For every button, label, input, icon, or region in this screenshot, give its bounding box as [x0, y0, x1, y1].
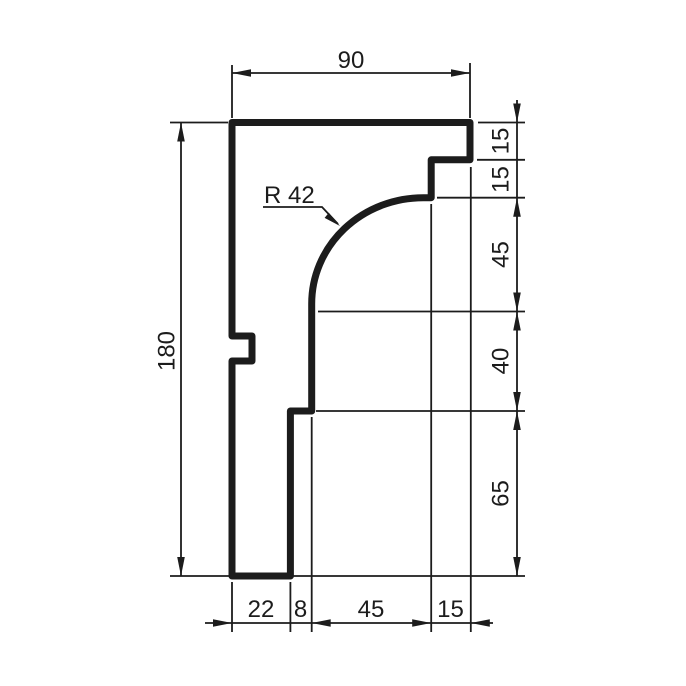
dim-bottom-15-label: 15	[437, 596, 464, 623]
dim-radius-label: R 42	[264, 182, 315, 209]
dim-top-width-label: 90	[338, 47, 365, 74]
dim-right-45-label: 45	[488, 241, 515, 268]
dim-right-15b-label: 15	[488, 166, 515, 193]
dim-right-40-label: 40	[488, 348, 515, 375]
drawing-background	[0, 0, 686, 686]
dim-bottom-8-label: 8	[294, 596, 307, 623]
drawing-canvas: 90 180 15 15 45 40 65 22 8 45 15 R 42	[0, 0, 686, 686]
dim-left-height-label: 180	[154, 331, 181, 371]
dim-bottom-22-label: 22	[248, 596, 275, 623]
dim-bottom-45-label: 45	[358, 596, 385, 623]
dim-right-65-label: 65	[488, 480, 515, 507]
profile-drawing: 90 180 15 15 45 40 65 22 8 45 15 R 42	[0, 0, 686, 686]
dim-right-15a-label: 15	[488, 128, 515, 155]
